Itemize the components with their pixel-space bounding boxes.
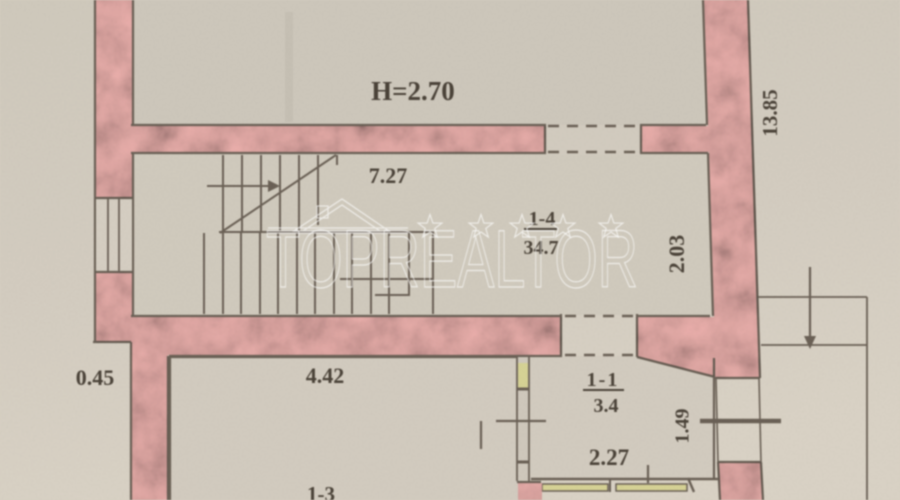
svg-text:1-1: 1-1: [587, 369, 620, 391]
svg-text:4.42: 4.42: [306, 363, 345, 388]
svg-text:1.49: 1.49: [672, 409, 694, 444]
svg-text:2.27: 2.27: [589, 445, 629, 470]
svg-text:H=2.70: H=2.70: [371, 76, 455, 106]
svg-text:TOPREALTOR: TOPREALTOR: [266, 214, 638, 305]
svg-text:3.4: 3.4: [594, 395, 619, 417]
svg-text:1-3: 1-3: [307, 482, 335, 500]
svg-text:0.45: 0.45: [76, 365, 115, 390]
svg-text:2.03: 2.03: [664, 235, 689, 274]
svg-text:13.85: 13.85: [758, 89, 782, 136]
svg-text:7.27: 7.27: [369, 163, 408, 188]
